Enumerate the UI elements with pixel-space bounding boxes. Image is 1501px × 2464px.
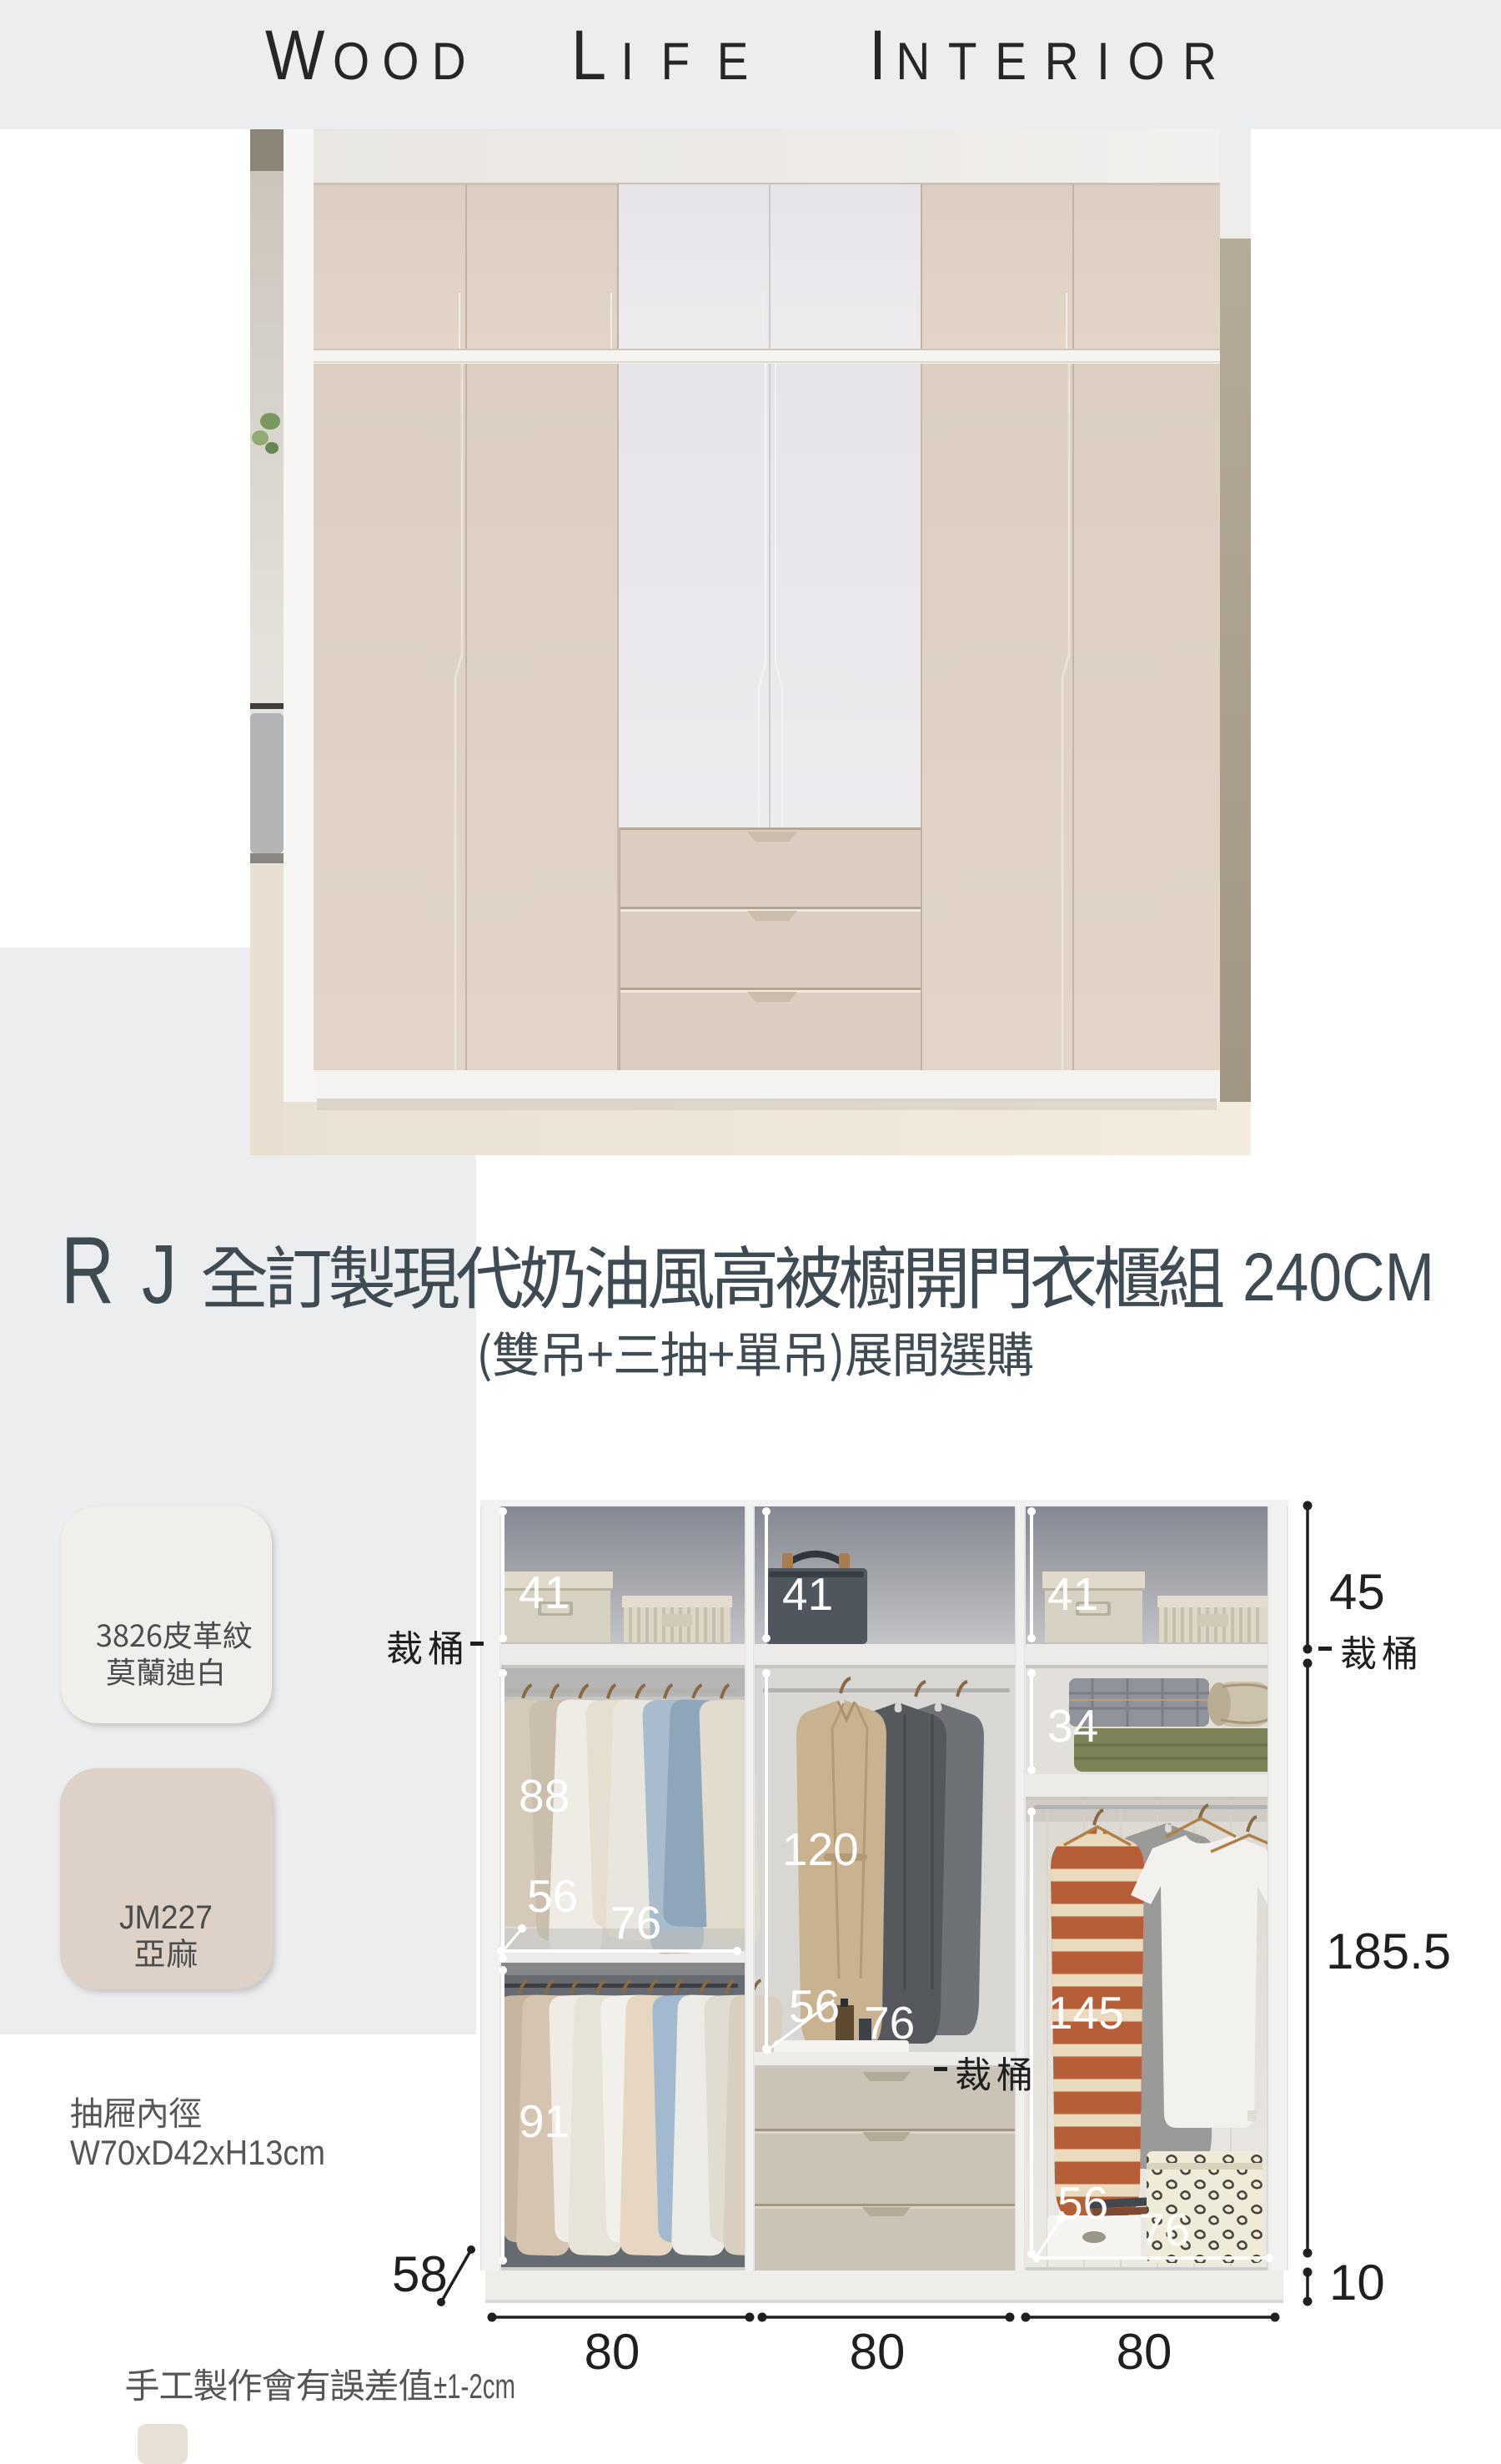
svg-text:45: 45	[1329, 1564, 1385, 1620]
svg-text:76: 76	[1139, 2204, 1190, 2255]
svg-text:56: 56	[789, 1980, 840, 2032]
svg-text:W: W	[265, 16, 325, 94]
svg-text:80: 80	[850, 2324, 906, 2380]
svg-text:W70xD42xH13cm: W70xD42xH13cm	[70, 2133, 325, 2172]
svg-text:41: 41	[1047, 1568, 1098, 1620]
svg-text:80: 80	[585, 2324, 640, 2380]
svg-text:NTERIOR: NTERIOR	[896, 32, 1234, 90]
svg-text:41: 41	[519, 1566, 570, 1618]
svg-text:91: 91	[519, 2095, 570, 2147]
svg-text:240CM: 240CM	[1242, 1240, 1434, 1315]
svg-text:34: 34	[1047, 1700, 1098, 1752]
svg-text:IFE: IFE	[620, 32, 775, 90]
svg-text:80: 80	[1117, 2324, 1172, 2380]
svg-text:120: 120	[782, 1823, 859, 1875]
svg-text:56: 56	[1057, 2177, 1108, 2229]
svg-text:J: J	[142, 1228, 177, 1321]
svg-text:76: 76	[610, 1897, 661, 1949]
svg-text:88: 88	[519, 1770, 570, 1822]
svg-text:76: 76	[864, 1997, 915, 2049]
svg-text:JM227: JM227	[119, 1899, 213, 1936]
svg-text:OOD: OOD	[333, 32, 479, 90]
svg-text:58: 58	[392, 2246, 448, 2302]
svg-text:41: 41	[782, 1568, 833, 1620]
svg-text:56: 56	[527, 1870, 578, 1922]
svg-text:10: 10	[1329, 2255, 1385, 2311]
svg-text:L: L	[571, 16, 606, 94]
svg-text:R: R	[61, 1218, 114, 1324]
svg-text:185.5: 185.5	[1326, 1923, 1451, 1979]
svg-text:145: 145	[1047, 1987, 1124, 2039]
svg-text:I: I	[869, 16, 886, 94]
